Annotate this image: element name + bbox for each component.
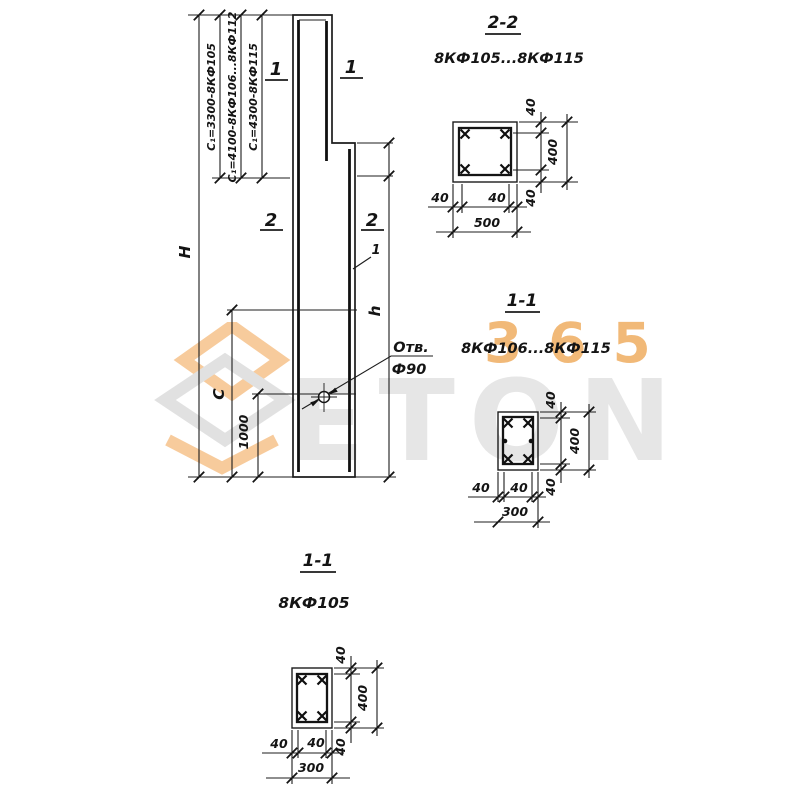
dim-width: 300 — [298, 760, 324, 775]
dimension-ticks — [194, 10, 394, 482]
section-1-1-mid-title: 1-1 — [507, 291, 538, 311]
hole-callout: Отв. Ф90 — [302, 340, 433, 412]
length-option-2: C₁=4100-8КФ106...8КФ112 — [226, 11, 239, 182]
section-1-1-bottom-rebar-marks — [298, 676, 327, 721]
section-2-2-rebar-marks — [461, 130, 510, 174]
dim-cover: 40 — [487, 190, 506, 205]
dim-cover: 40 — [543, 478, 558, 497]
dim-cover: 40 — [543, 391, 558, 410]
dim-height: 400 — [545, 139, 560, 166]
dim-height: 400 — [567, 428, 582, 455]
dim-cover: 40 — [333, 646, 348, 665]
section-1-1-bottom-title: 1-1 — [303, 551, 334, 571]
length-option-3: C₁=4300-8КФ115 — [247, 43, 260, 151]
dim-cover: 40 — [333, 738, 348, 757]
dim-cover: 40 — [523, 98, 538, 117]
dim-height: 400 — [355, 685, 370, 712]
rebar-callout: 1 — [371, 243, 380, 258]
leader-arrow-icon — [310, 400, 319, 407]
dim-width: 500 — [474, 215, 500, 230]
mid-bar-dot — [503, 439, 508, 444]
dim-width: 300 — [502, 504, 528, 519]
section-mark-1-left: 1 — [270, 59, 283, 80]
section-mark-2-right: 2 — [366, 210, 379, 231]
dim-cover: 40 — [269, 736, 288, 751]
technical-drawing: H h C 1000 C₁=3300-8КФ105 C₁=4100-8КФ106… — [0, 0, 800, 800]
section-1-1-mid: 1-1 8КФ106...8КФ115 40 40 400 — [461, 291, 611, 528]
drawing-sheet: ETON 365 — [0, 0, 800, 800]
section-2-2-subtitle: 8КФ105...8КФ115 — [434, 51, 584, 67]
section-mark-1-right: 1 — [345, 57, 358, 78]
section-2-2: 2-2 8КФ105...8КФ115 40 40 400 — [428, 13, 584, 238]
dim-lower-height: h — [366, 305, 384, 316]
length-option-1: C₁=3300-8КФ105 — [205, 43, 218, 151]
dim-upper-zone: C — [210, 388, 228, 400]
section-1-1-bottom-subtitle: 8КФ105 — [278, 594, 349, 612]
mid-bar-dot — [529, 439, 534, 444]
section-1-1-mid-rebar-marks — [504, 419, 533, 464]
section-marks: 1 1 2 2 1 — [260, 57, 384, 269]
hole-diameter: Ф90 — [392, 362, 427, 378]
section-1-1-bottom: 1-1 8КФ105 40 40 400 — [262, 551, 384, 784]
dim-hole-offset: 1000 — [236, 414, 251, 449]
dim-cover: 40 — [523, 189, 538, 208]
dim-cover: 40 — [509, 480, 528, 495]
hole-label: Отв. — [393, 340, 428, 356]
dim-overall-height: H — [176, 245, 194, 258]
dim-cover: 40 — [430, 190, 449, 205]
dim-cover: 40 — [471, 480, 490, 495]
section-1-1-mid-subtitle: 8КФ106...8КФ115 — [461, 341, 611, 357]
dim-cover: 40 — [306, 735, 325, 750]
section-2-2-title: 2-2 — [488, 13, 519, 33]
section-mark-2-left: 2 — [265, 210, 278, 231]
